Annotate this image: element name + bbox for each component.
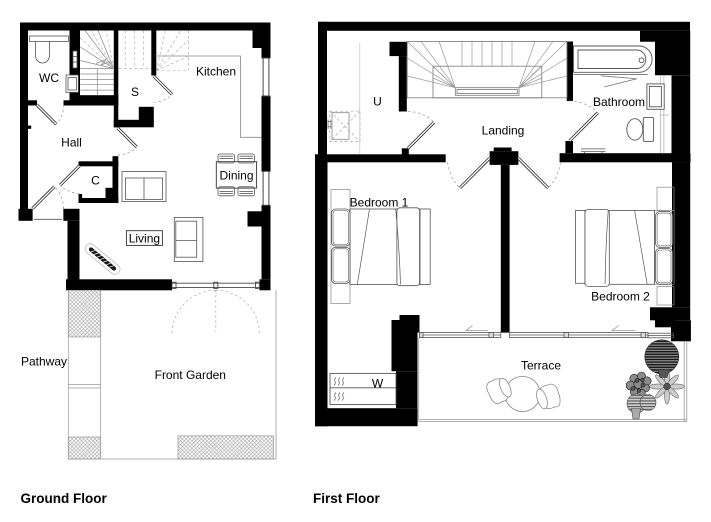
svg-text:Bedroom 2: Bedroom 2 <box>591 290 650 304</box>
svg-text:W: W <box>372 377 384 391</box>
svg-text:Living: Living <box>129 232 160 246</box>
svg-text:Pathway: Pathway <box>21 355 67 369</box>
svg-text:Kitchen: Kitchen <box>196 65 236 79</box>
svg-text:Dining: Dining <box>219 169 253 183</box>
svg-text:Hall: Hall <box>61 136 82 150</box>
svg-text:C: C <box>91 174 100 188</box>
svg-text:Front Garden: Front Garden <box>155 368 226 382</box>
svg-text:Terrace: Terrace <box>521 359 561 373</box>
svg-text:WC: WC <box>39 71 59 85</box>
svg-text:First Floor: First Floor <box>313 491 380 506</box>
svg-text:S: S <box>131 85 139 99</box>
svg-text:U: U <box>373 95 382 109</box>
svg-text:Landing: Landing <box>482 124 525 138</box>
svg-text:Ground Floor: Ground Floor <box>21 491 108 506</box>
svg-text:Bathroom: Bathroom <box>593 95 645 109</box>
svg-text:Bedroom 1: Bedroom 1 <box>350 196 409 210</box>
